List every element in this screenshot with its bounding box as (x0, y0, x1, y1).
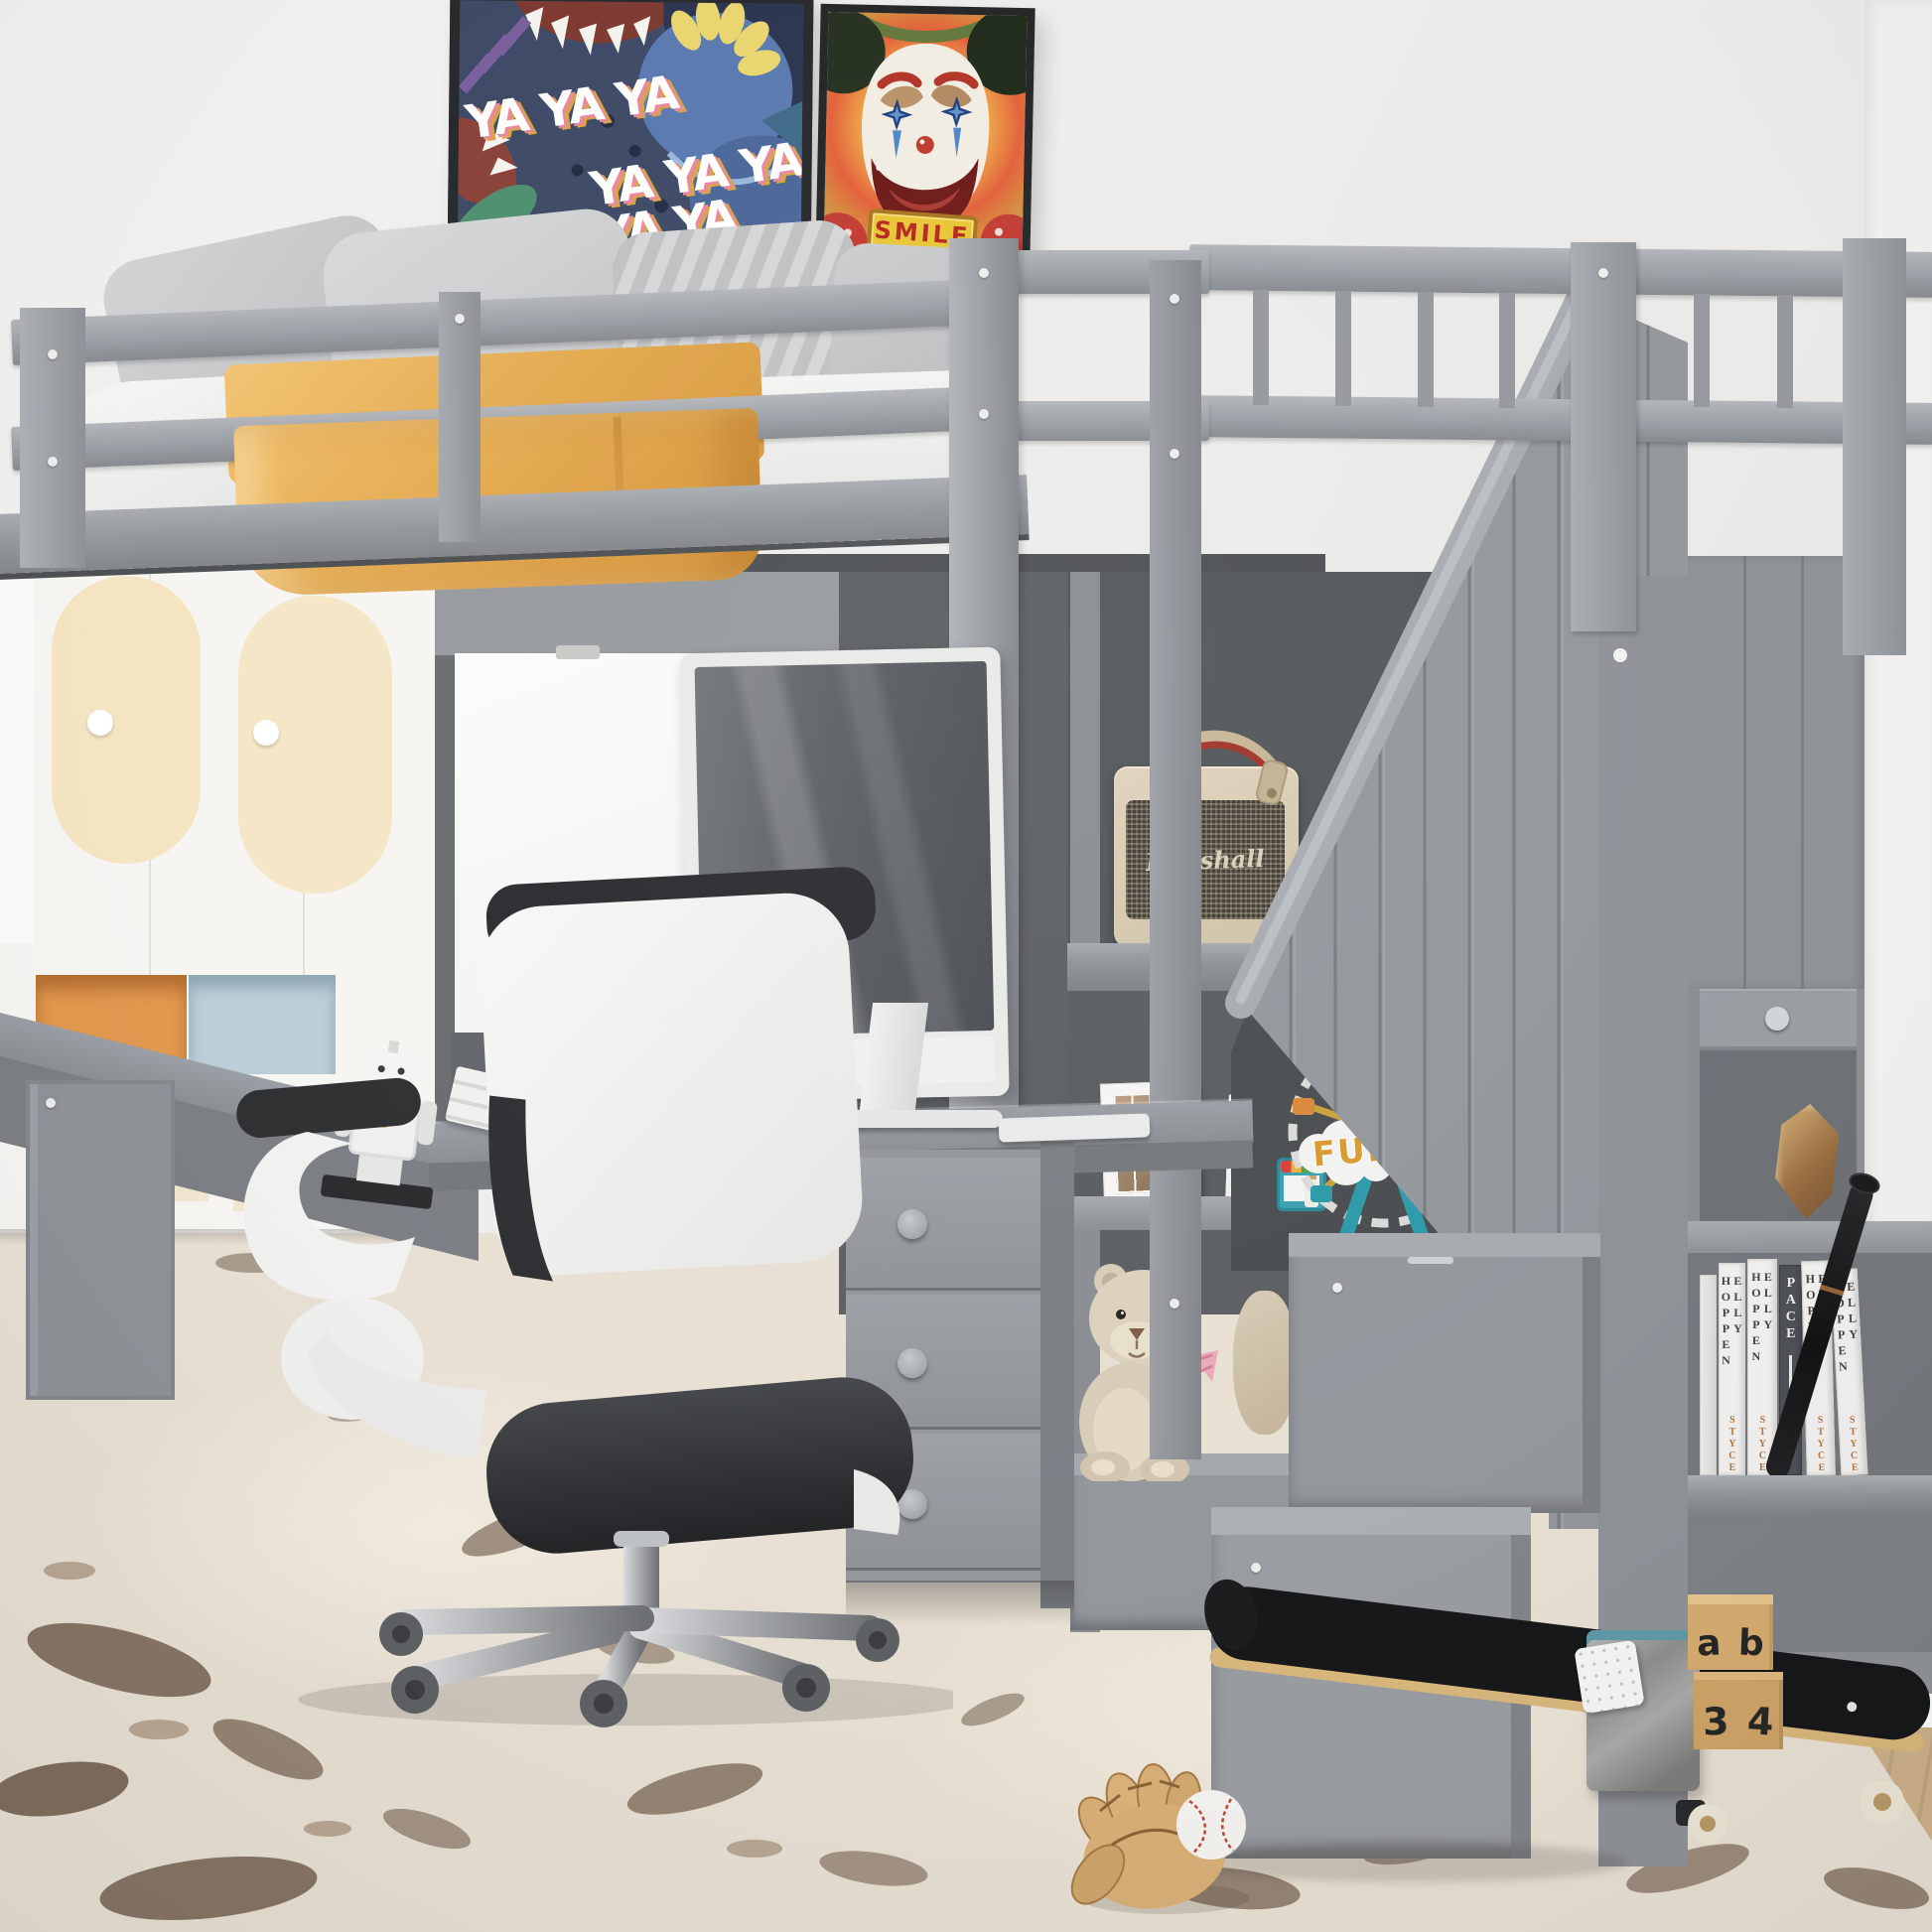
letter-block-34: 3 4 (1694, 1672, 1783, 1749)
screw (455, 314, 465, 324)
wardrobe-knob (87, 710, 113, 736)
kids-room-photo: YA YA YA YA YA YA YA YA YA (0, 0, 1932, 1932)
block-number: 4 (1746, 1699, 1775, 1743)
bed-post-left (20, 308, 85, 568)
basket-cloth (1574, 1640, 1645, 1715)
bed-rail-post-mid (439, 292, 481, 542)
screw (1170, 294, 1179, 304)
office-chair (159, 834, 953, 1727)
baseball-glove (1060, 1759, 1269, 1928)
landing-rail-mid (1189, 395, 1932, 445)
landing-spindle (1418, 292, 1434, 407)
wall-side-post (1843, 238, 1906, 655)
screw (1332, 1283, 1342, 1293)
landing-spindle (1499, 293, 1515, 408)
clown-bear-poster: SMILE (815, 4, 1035, 266)
landing-spindle (1694, 294, 1710, 407)
letter-block-ab: a b (1688, 1594, 1773, 1670)
storage-basket (1587, 1630, 1700, 1791)
whiteboard-clip (556, 645, 600, 659)
wardrobe-knob (253, 720, 279, 746)
step-hinge (1408, 1257, 1453, 1264)
screw (979, 268, 989, 278)
landing-spindle (1253, 290, 1269, 405)
wardrobe-light-sliver (0, 546, 34, 943)
landing-spindle (1777, 295, 1793, 408)
screw (979, 409, 989, 419)
landing-rail-top (1189, 244, 1932, 298)
screw (1170, 1299, 1179, 1309)
screw (48, 457, 58, 467)
skateboard (1181, 1564, 1932, 1921)
block-number: 3 (1703, 1700, 1730, 1744)
screw (1598, 268, 1608, 278)
landing-spindle (1335, 291, 1351, 406)
stair-corner-post (1571, 242, 1636, 631)
bed-post-rear-right (1150, 260, 1201, 1459)
screw (48, 349, 58, 359)
desk-side-cabinet (26, 1080, 175, 1400)
block-letter: a (1696, 1622, 1722, 1664)
screw (1170, 449, 1179, 459)
screw (46, 1098, 56, 1108)
drawer-column-side (1040, 1142, 1074, 1608)
block-letter: b (1738, 1623, 1765, 1665)
wardrobe-oval-accent (52, 576, 201, 864)
stair-step-upper (1289, 1233, 1600, 1513)
